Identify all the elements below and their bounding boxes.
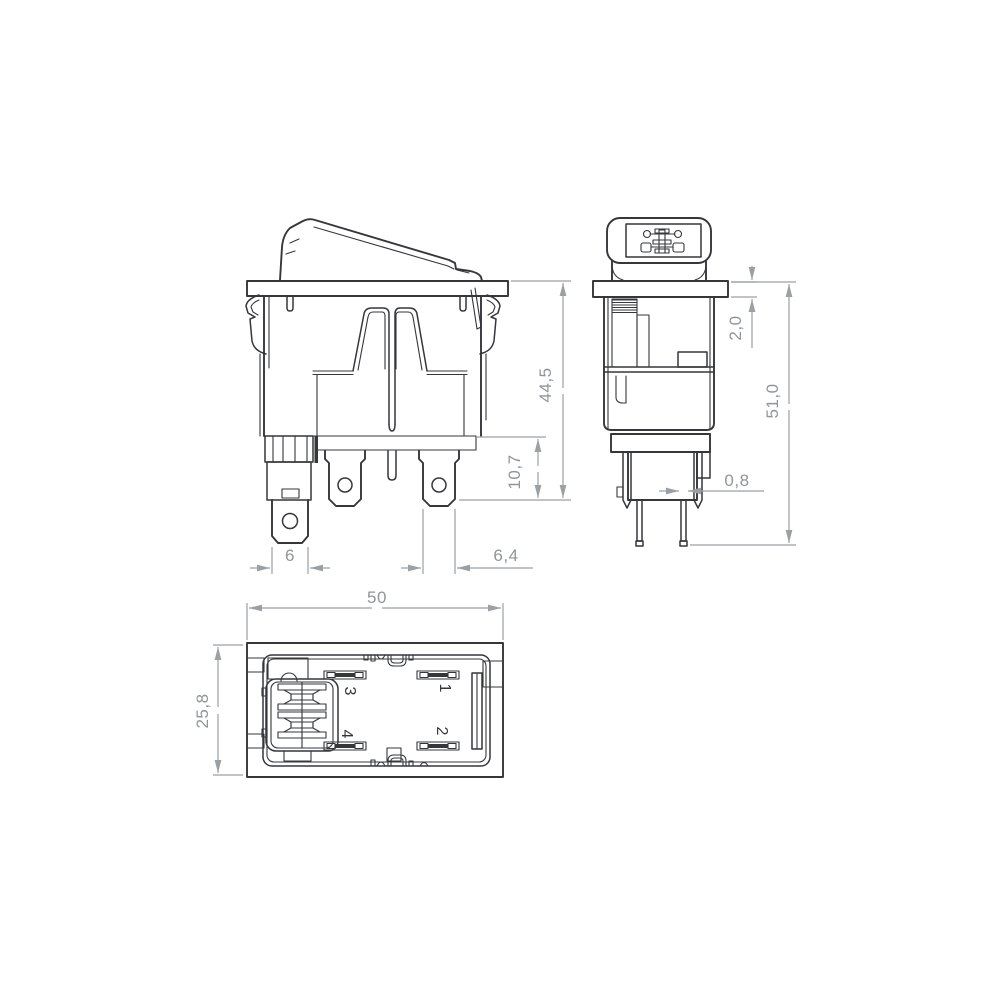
terminal-right (419, 451, 459, 506)
bottom-view: 3 4 1 2 (247, 643, 503, 777)
center-pin (388, 451, 396, 480)
mounting-clip-right (480, 295, 500, 420)
side-body (604, 297, 714, 430)
terminal-number-2: 2 (433, 727, 450, 736)
terminal-number-1: 1 (436, 684, 453, 693)
dim-terminal-length: 10,7 (477, 437, 546, 498)
dim-label-overall-width: 50 (367, 588, 387, 607)
dim-terminal-thickness: 0,8 (659, 471, 764, 491)
dim-label-total-height: 51,0 (763, 383, 782, 418)
bottom-edge-tabs (371, 748, 428, 766)
terminal-number-4: 4 (338, 730, 355, 739)
dim-label-flange-thickness: 2,0 (726, 315, 745, 340)
side-view (593, 218, 728, 546)
dim-label-front-height: 44,5 (536, 367, 555, 402)
terminal-hole-left (283, 514, 298, 529)
terminal-slot-3 (324, 671, 366, 679)
terminal-slot-1 (417, 671, 459, 679)
spade-terminal-left (272, 500, 308, 543)
side-lower-block (611, 434, 710, 508)
dim-terminal-width: 6,4 (401, 509, 533, 574)
side-flange (593, 281, 728, 297)
dim-left-terminal-width: 6 (250, 546, 330, 574)
terminal-hole-right (432, 478, 446, 492)
side-rocker-cap (607, 218, 711, 263)
dim-label-overall-depth: 25,8 (193, 693, 212, 728)
mounting-clip-left (246, 295, 266, 436)
dim-overall-depth: 25,8 (193, 645, 243, 775)
technical-drawing-page: 3 4 1 2 44,5 10,7 6 6,4 (0, 0, 1000, 1000)
side-terminal-pins (636, 500, 687, 546)
front-pin-left (287, 296, 293, 311)
terminal-number-3: 3 (341, 687, 358, 696)
left-edge-step-top (247, 658, 264, 672)
dimension-annotations: 44,5 10,7 6 6,4 2,0 (193, 266, 796, 775)
front-flange (247, 281, 508, 296)
side-neck (612, 261, 706, 281)
front-view (246, 219, 508, 543)
rocker-switch-drawing: 3 4 1 2 44,5 10,7 6 6,4 (0, 0, 1000, 1000)
right-slot-bar (472, 661, 503, 749)
dim-flange-thickness: 2,0 (726, 266, 757, 348)
dim-label-terminal-length: 10,7 (505, 454, 524, 489)
rocker-actuator (280, 219, 482, 281)
front-pin-right (460, 296, 466, 311)
latch-ribs (612, 299, 649, 367)
terminal-hole-middle (338, 478, 352, 492)
w-cutout (313, 308, 467, 436)
top-edge-tabs (364, 655, 413, 666)
switch-symbol (641, 229, 684, 253)
dim-label-left-terminal-width: 6 (285, 546, 295, 565)
dim-label-terminal-thickness: 0,8 (724, 471, 749, 490)
terminal-middle (325, 451, 365, 506)
dim-overall-width: 50 (247, 588, 503, 640)
dim-label-terminal-width: 6,4 (493, 546, 518, 565)
terminal-slot-2 (417, 742, 459, 750)
terminal-tower-left (265, 436, 318, 543)
